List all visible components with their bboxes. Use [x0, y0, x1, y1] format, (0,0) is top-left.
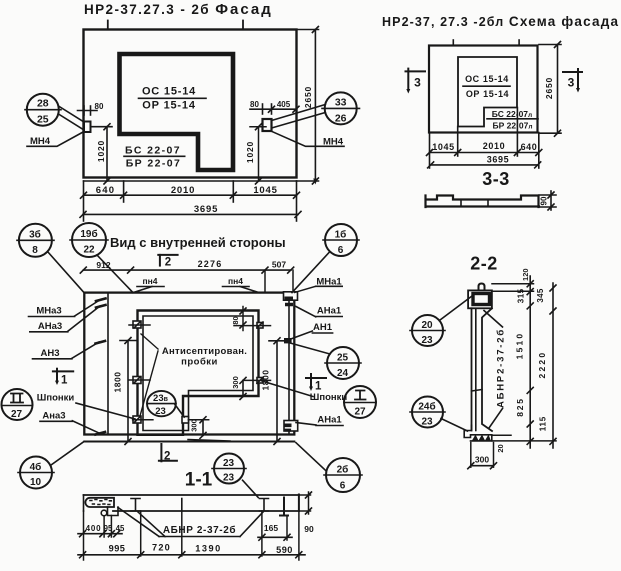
svg-text:АБНР 2-37-2б: АБНР 2-37-2б — [163, 524, 236, 536]
svg-text:Шпонки: Шпонки — [310, 392, 348, 403]
svg-text:1800: 1800 — [113, 372, 123, 393]
svg-text:пробки: пробки — [181, 357, 218, 368]
svg-text:2б: 2б — [337, 464, 349, 476]
svg-text:НР2-37.27.3 - 2б Фасад: НР2-37.27.3 - 2б Фасад — [84, 1, 273, 18]
svg-text:33: 33 — [335, 97, 347, 109]
svg-text:1020: 1020 — [96, 140, 106, 162]
svg-text:165: 165 — [264, 523, 278, 533]
svg-text:95: 95 — [104, 524, 113, 533]
svg-text:20: 20 — [421, 320, 433, 331]
svg-text:1б: 1б — [335, 229, 347, 241]
svg-text:НР2-37, 27.3 -2бл Схема фасада: НР2-37, 27.3 -2бл Схема фасада — [382, 14, 619, 29]
svg-text:23: 23 — [223, 473, 235, 484]
svg-text:АН1: АН1 — [313, 322, 333, 333]
svg-text:3: 3 — [414, 76, 421, 90]
svg-text:3695: 3695 — [487, 155, 509, 165]
svg-text:27: 27 — [354, 407, 366, 418]
svg-text:24: 24 — [337, 368, 349, 379]
svg-text:25: 25 — [337, 353, 349, 364]
svg-text:20: 20 — [496, 444, 505, 452]
svg-text:19б: 19б — [80, 228, 97, 240]
svg-text:300: 300 — [190, 419, 199, 432]
svg-text:пн4: пн4 — [228, 276, 243, 286]
svg-text:2220: 2220 — [537, 351, 547, 379]
svg-text:2: 2 — [165, 257, 171, 269]
svg-text:27: 27 — [11, 409, 23, 420]
svg-text:АНа3: АНа3 — [38, 321, 62, 332]
svg-text:БС 22-07л: БС 22-07л — [492, 109, 532, 119]
svg-text:ОР 15-14: ОР 15-14 — [466, 89, 509, 99]
svg-text:2010: 2010 — [171, 185, 195, 196]
svg-text:1390: 1390 — [195, 544, 221, 554]
svg-text:2276: 2276 — [198, 259, 223, 269]
svg-text:640: 640 — [96, 185, 115, 196]
svg-text:2: 2 — [164, 451, 170, 463]
svg-text:22: 22 — [83, 245, 95, 256]
svg-text:507: 507 — [272, 260, 286, 270]
svg-text:6: 6 — [340, 481, 346, 492]
svg-text:25: 25 — [37, 114, 49, 126]
svg-text:1: 1 — [315, 381, 322, 393]
svg-text:995: 995 — [109, 544, 126, 554]
svg-text:28: 28 — [37, 98, 49, 110]
svg-text:90: 90 — [540, 196, 549, 205]
svg-text:Шпонки: Шпонки — [37, 393, 75, 404]
svg-text:3: 3 — [568, 76, 575, 90]
svg-text:Ана3: Ана3 — [42, 411, 65, 422]
svg-text:ОС 15-14: ОС 15-14 — [465, 74, 509, 84]
svg-text:300: 300 — [475, 455, 489, 465]
svg-text:345: 345 — [536, 288, 545, 302]
svg-text:1-1: 1-1 — [185, 470, 213, 491]
svg-text:23в: 23в — [153, 393, 169, 404]
svg-text:4б: 4б — [30, 461, 42, 473]
svg-text:1045: 1045 — [432, 142, 454, 152]
svg-text:3695: 3695 — [194, 204, 218, 215]
svg-text:80: 80 — [231, 316, 240, 324]
svg-text:1: 1 — [61, 375, 68, 387]
svg-text:720: 720 — [152, 543, 171, 553]
svg-text:БС 22-07: БС 22-07 — [125, 144, 181, 156]
svg-text:640: 640 — [521, 142, 538, 152]
svg-text:8: 8 — [32, 245, 38, 256]
svg-text:Антисептирован.: Антисептирован. — [162, 346, 247, 357]
svg-text:90: 90 — [304, 524, 314, 534]
svg-text:23: 23 — [421, 335, 433, 346]
svg-text:АН3: АН3 — [40, 348, 59, 359]
svg-text:23: 23 — [421, 417, 433, 428]
svg-text:825: 825 — [515, 397, 525, 417]
svg-text:2010: 2010 — [483, 141, 505, 151]
svg-text:МНа3: МНа3 — [36, 306, 61, 317]
svg-text:6: 6 — [338, 245, 344, 256]
svg-text:300: 300 — [231, 376, 240, 389]
svg-text:Вид с внутренней стороны: Вид с внутренней стороны — [110, 235, 286, 250]
svg-text:115: 115 — [539, 416, 548, 431]
svg-text:БР 22-07: БР 22-07 — [126, 158, 182, 170]
svg-text:120: 120 — [521, 268, 530, 281]
svg-text:24б: 24б — [418, 401, 435, 413]
svg-text:АНа1: АНа1 — [317, 306, 342, 317]
svg-text:ОС 15-14: ОС 15-14 — [142, 86, 196, 98]
svg-text:3б: 3б — [29, 229, 41, 241]
svg-text:912: 912 — [96, 260, 110, 270]
svg-text:2-2: 2-2 — [470, 254, 498, 274]
svg-text:ОР 15-14: ОР 15-14 — [142, 100, 196, 112]
svg-text:АНа1: АНа1 — [317, 415, 342, 426]
svg-text:80: 80 — [95, 102, 104, 111]
svg-text:590: 590 — [276, 545, 293, 555]
svg-text:1045: 1045 — [253, 185, 277, 196]
svg-text:315: 315 — [517, 288, 526, 303]
svg-text:80: 80 — [250, 100, 259, 109]
svg-text:2650: 2650 — [303, 86, 313, 108]
svg-text:МН4: МН4 — [30, 136, 51, 147]
svg-text:45: 45 — [116, 524, 125, 533]
svg-text:23: 23 — [155, 406, 166, 417]
svg-text:пн4: пн4 — [143, 276, 158, 286]
svg-text:23: 23 — [223, 458, 235, 469]
svg-text:26: 26 — [335, 113, 347, 125]
svg-text:БР 22·07л: БР 22·07л — [492, 121, 532, 131]
svg-text:АБНР2-37-2б: АБНР2-37-2б — [496, 328, 507, 408]
svg-text:2650: 2650 — [544, 77, 554, 99]
svg-text:400: 400 — [86, 524, 102, 533]
svg-text:10: 10 — [30, 477, 42, 488]
svg-text:405: 405 — [277, 100, 291, 109]
svg-text:1020: 1020 — [245, 141, 255, 163]
svg-text:1510: 1510 — [515, 332, 525, 360]
svg-text:3-3: 3-3 — [482, 169, 510, 189]
